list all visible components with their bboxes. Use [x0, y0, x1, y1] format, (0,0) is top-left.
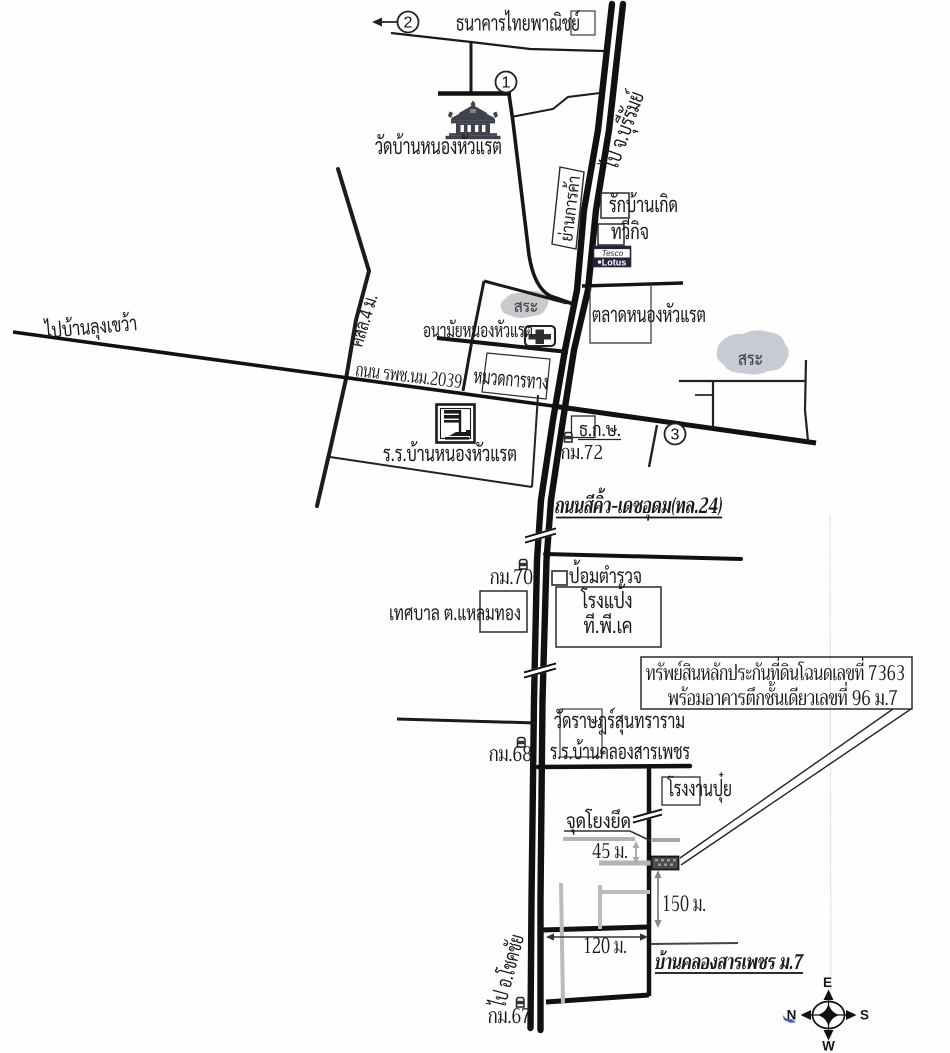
svg-text:Tesco: Tesco: [602, 249, 624, 258]
svg-text:W: W: [822, 1039, 835, 1053]
svg-text:3: 3: [671, 427, 680, 444]
svg-text:S: S: [860, 1008, 869, 1023]
svg-text:2: 2: [404, 15, 413, 32]
svg-text:1: 1: [502, 75, 511, 92]
svg-text:E: E: [823, 975, 832, 990]
svg-text:Lotus: Lotus: [602, 257, 627, 267]
